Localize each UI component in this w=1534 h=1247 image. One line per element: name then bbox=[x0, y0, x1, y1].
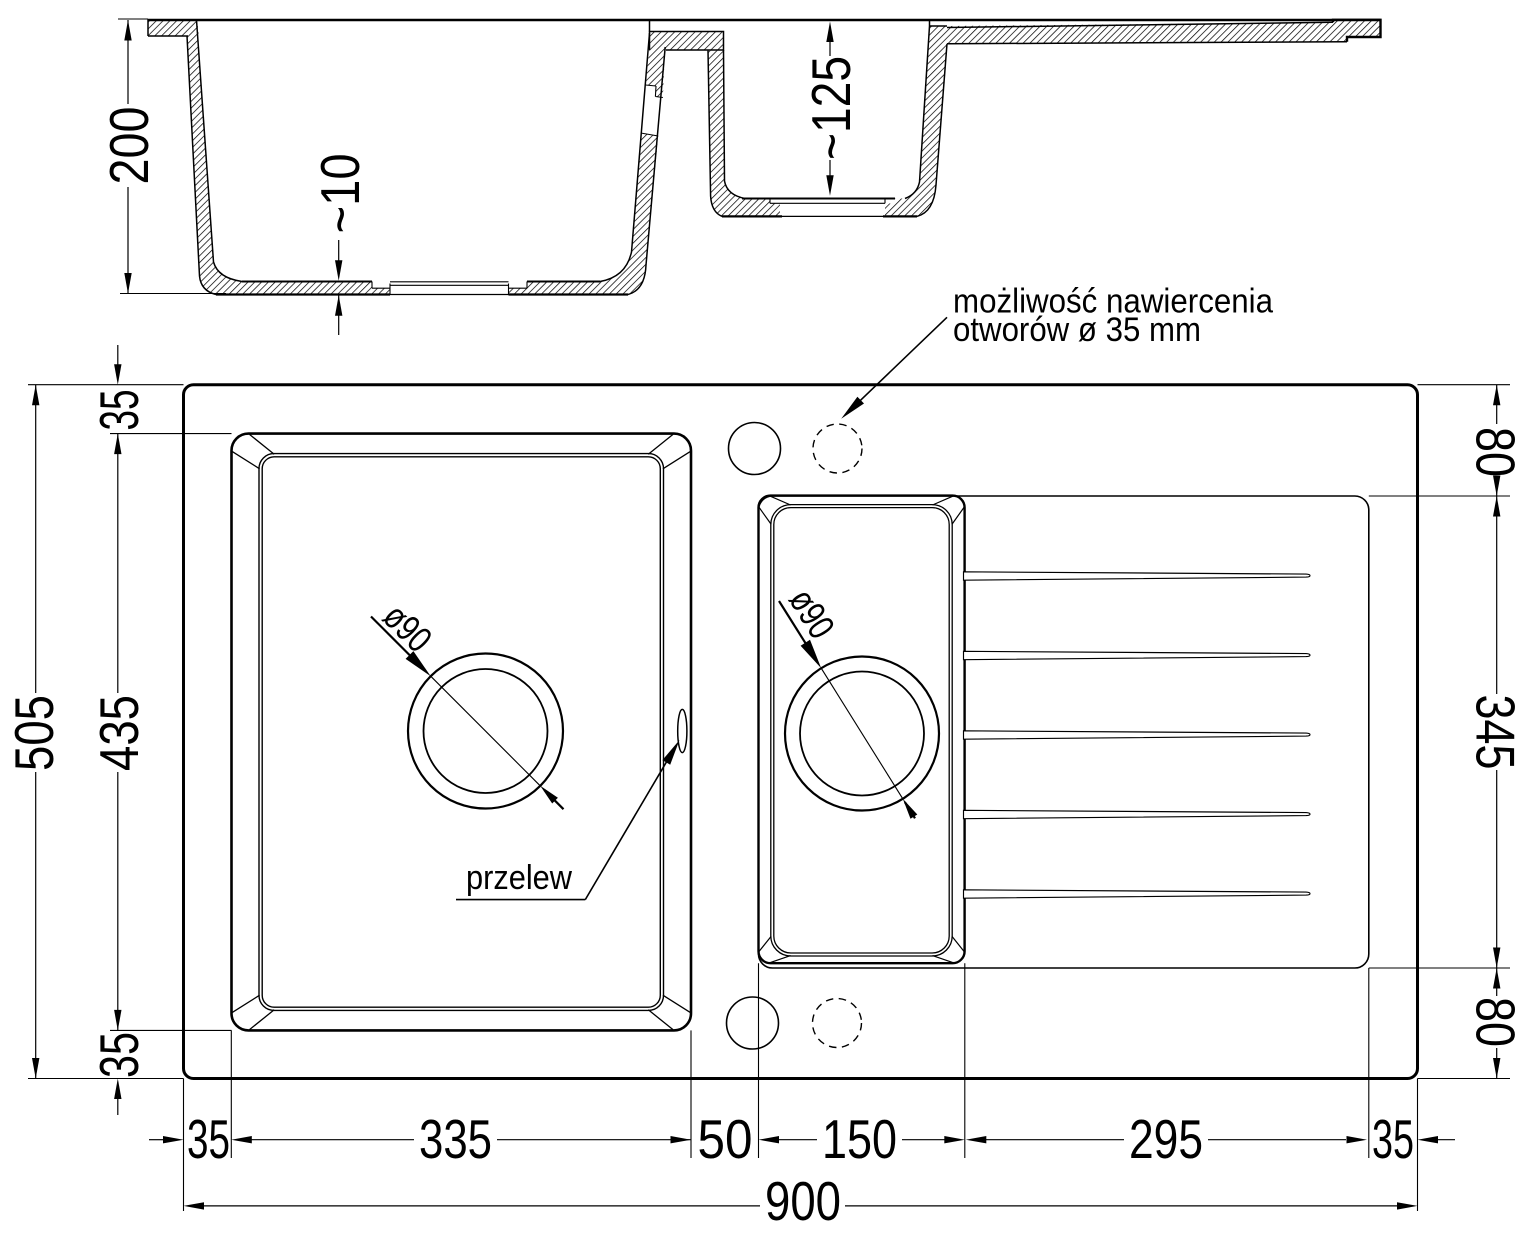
svg-text:35: 35 bbox=[1372, 1108, 1414, 1170]
svg-text:345: 345 bbox=[1465, 695, 1527, 770]
svg-text:~125: ~125 bbox=[800, 56, 862, 160]
svg-text:505: 505 bbox=[3, 695, 65, 771]
svg-text:900: 900 bbox=[765, 1170, 841, 1232]
svg-text:35: 35 bbox=[187, 1108, 230, 1170]
svg-text:przelew: przelew bbox=[466, 859, 572, 897]
svg-text:otworów ø 35 mm: otworów ø 35 mm bbox=[953, 311, 1201, 349]
svg-text:335: 335 bbox=[419, 1108, 492, 1170]
svg-text:50: 50 bbox=[698, 1108, 753, 1170]
svg-text:~10: ~10 bbox=[309, 153, 371, 233]
svg-text:295: 295 bbox=[1129, 1108, 1203, 1170]
svg-text:80: 80 bbox=[1465, 427, 1527, 477]
svg-text:150: 150 bbox=[822, 1108, 897, 1170]
svg-text:35: 35 bbox=[88, 390, 150, 431]
svg-text:80: 80 bbox=[1465, 997, 1527, 1047]
svg-text:200: 200 bbox=[98, 107, 160, 185]
svg-text:435: 435 bbox=[88, 695, 150, 771]
svg-text:35: 35 bbox=[88, 1032, 150, 1078]
